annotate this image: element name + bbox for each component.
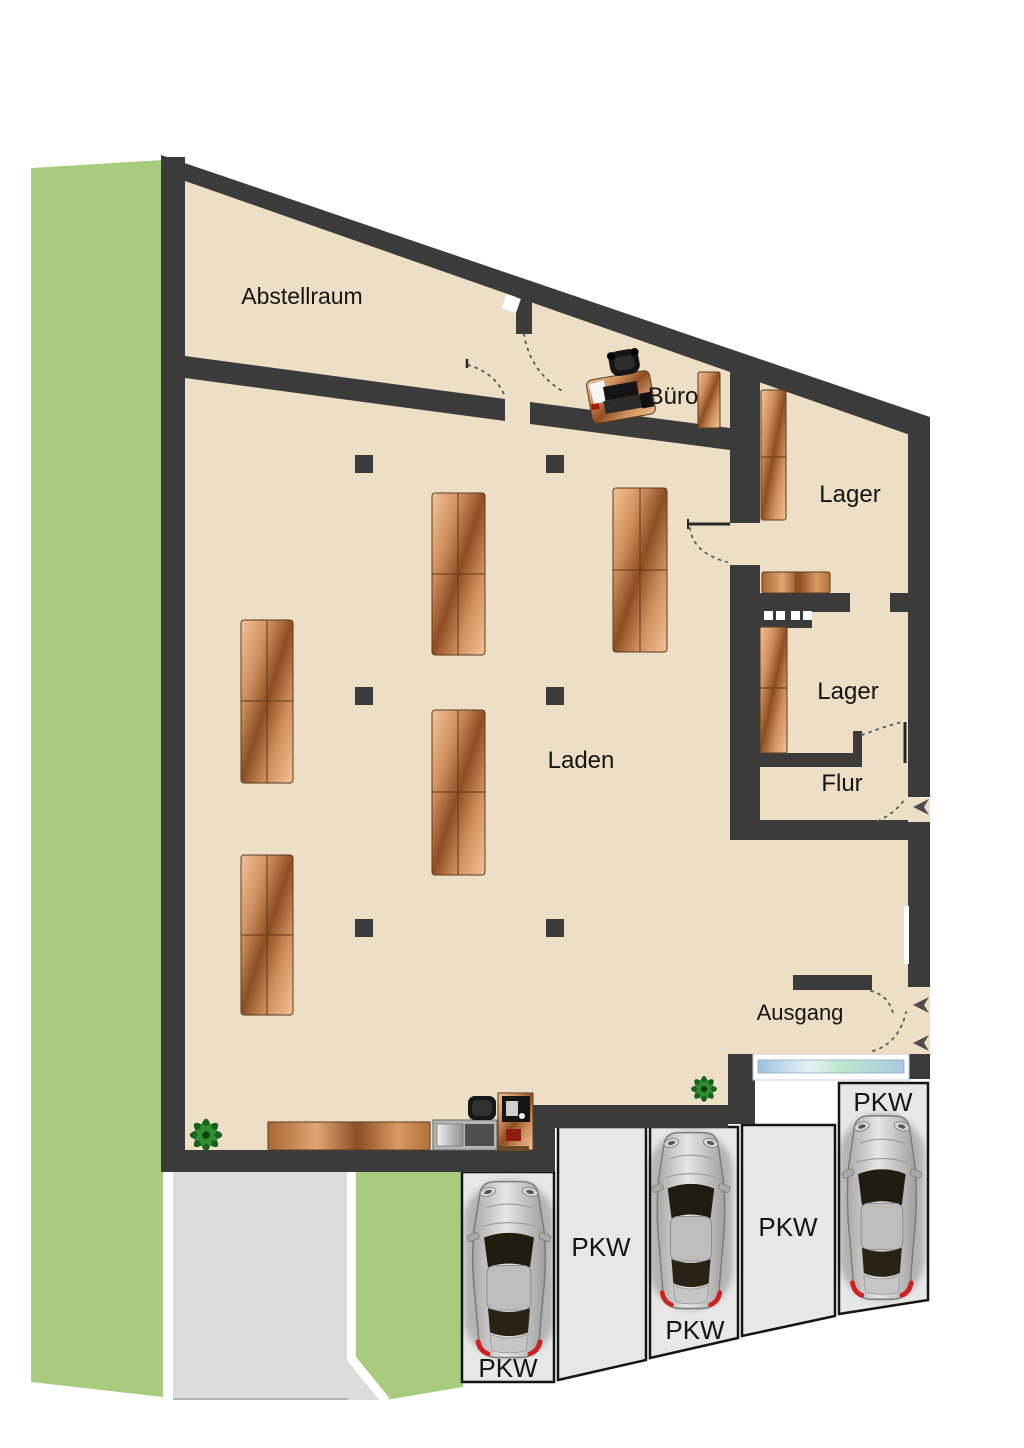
wall-buero-stub <box>516 288 532 334</box>
shelf-lager2-vertical <box>760 627 787 753</box>
pillar <box>355 919 373 937</box>
room-label-ausgang: Ausgang <box>757 1000 844 1025</box>
shelf-lager1-horizontal <box>762 572 830 593</box>
room-label-lager-top: Lager <box>819 481 880 508</box>
wall-ausgang-stub <box>793 975 872 990</box>
room-label-flur: Flur <box>821 770 862 797</box>
shelf-buero <box>698 372 720 428</box>
parking-label-4: PKW <box>758 1212 818 1242</box>
wall-divider-upper <box>730 363 760 523</box>
wall-notch-right <box>904 906 909 964</box>
wall-divider-lower <box>730 565 760 840</box>
plant-ausgang <box>691 1076 717 1102</box>
pillar <box>546 687 564 705</box>
wall-left <box>161 157 185 1170</box>
shelf-laden-a2 <box>241 855 293 1015</box>
shelf-laden-b1 <box>432 493 485 655</box>
floorplan-canvas: Abstellraum Büro Lager Lager Flur Laden … <box>0 0 1024 1448</box>
room-label-buero: Büro <box>648 383 699 410</box>
room-label-lager-mid: Lager <box>817 678 878 705</box>
cash-box <box>506 1129 521 1141</box>
pillar <box>355 455 373 473</box>
wall-bottom-left-band <box>161 1150 555 1172</box>
plant-laden <box>190 1119 223 1152</box>
sales-counter <box>268 1122 430 1150</box>
grass-strip-left <box>31 160 163 1397</box>
driveway-border-right <box>347 1172 356 1360</box>
wall-right-upper <box>908 417 930 797</box>
wall-lager2-door-stub <box>853 731 862 753</box>
car-spot-3 <box>649 1131 733 1310</box>
coffee-machine <box>502 1096 530 1122</box>
wall-right-middle <box>908 822 930 987</box>
wall-flur-bottom <box>760 820 908 840</box>
shelf-laden-c1 <box>613 488 667 652</box>
wall-right-lower <box>908 1054 930 1079</box>
heater <box>758 600 812 628</box>
pillar <box>546 455 564 473</box>
shelf-lager1-vertical <box>761 390 786 520</box>
wall-bottom-mid-band <box>533 1105 728 1128</box>
wall-bottom-corner <box>728 1054 755 1124</box>
shelf-laden-a1 <box>241 620 293 783</box>
car-spot-1 <box>464 1180 554 1359</box>
parking-label-1: PKW <box>478 1353 538 1383</box>
pillar <box>546 919 564 937</box>
shop-window <box>753 1054 909 1080</box>
grass-patch-bottom <box>356 1172 463 1400</box>
sink-unit <box>433 1120 497 1150</box>
parking-label-3: PKW <box>665 1315 725 1345</box>
car-spot-5 <box>839 1114 925 1300</box>
wall-lager-divider-stub <box>890 593 908 612</box>
visitor-chair <box>468 1096 496 1120</box>
parking-label-5: PKW <box>853 1087 913 1117</box>
room-label-laden: Laden <box>548 747 615 774</box>
shelf-laden-b2 <box>432 710 485 875</box>
pillar <box>355 687 373 705</box>
parking-label-2: PKW <box>571 1232 631 1262</box>
driveway-border-left <box>163 1172 173 1400</box>
wall-lager2-bottom <box>760 753 862 767</box>
coffee-table <box>497 1093 533 1151</box>
room-label-abstellraum: Abstellraum <box>241 283 362 309</box>
